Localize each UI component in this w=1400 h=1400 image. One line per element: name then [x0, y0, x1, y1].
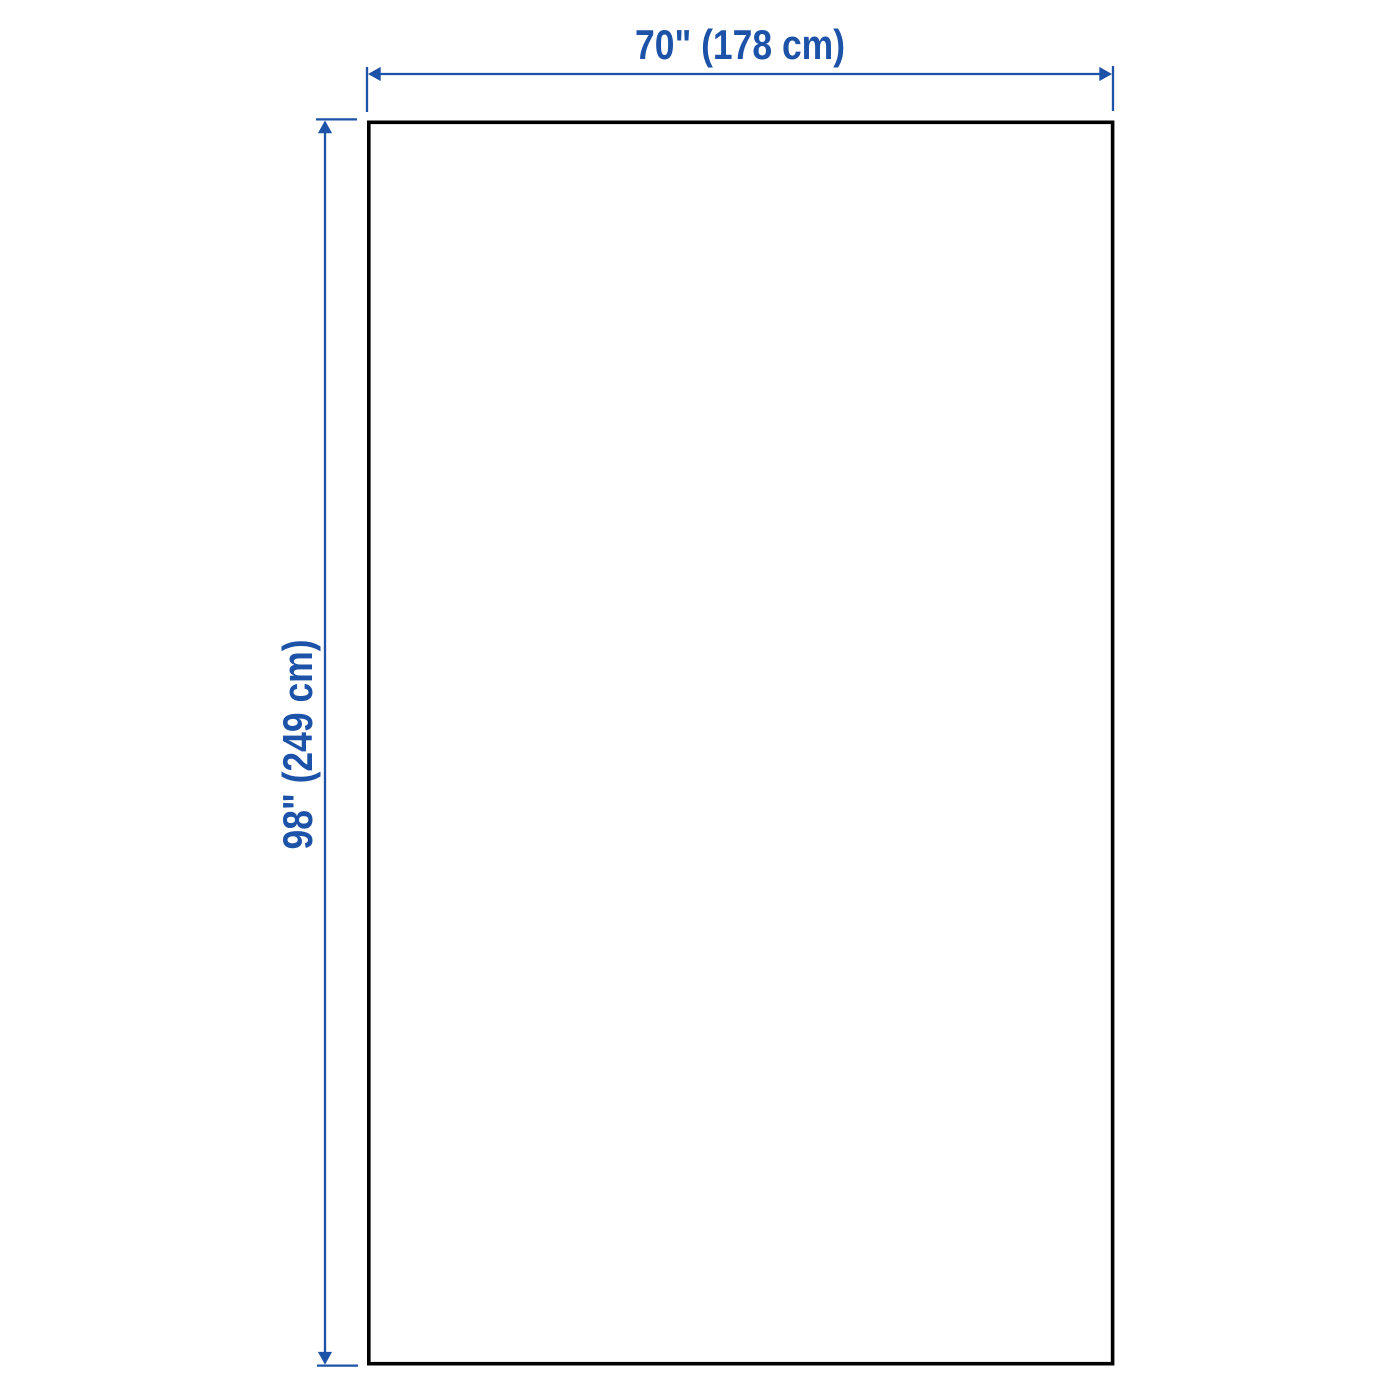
- svg-text:70" (178 cm): 70" (178 cm): [635, 21, 845, 68]
- svg-text:98" (249 cm): 98" (249 cm): [274, 640, 321, 850]
